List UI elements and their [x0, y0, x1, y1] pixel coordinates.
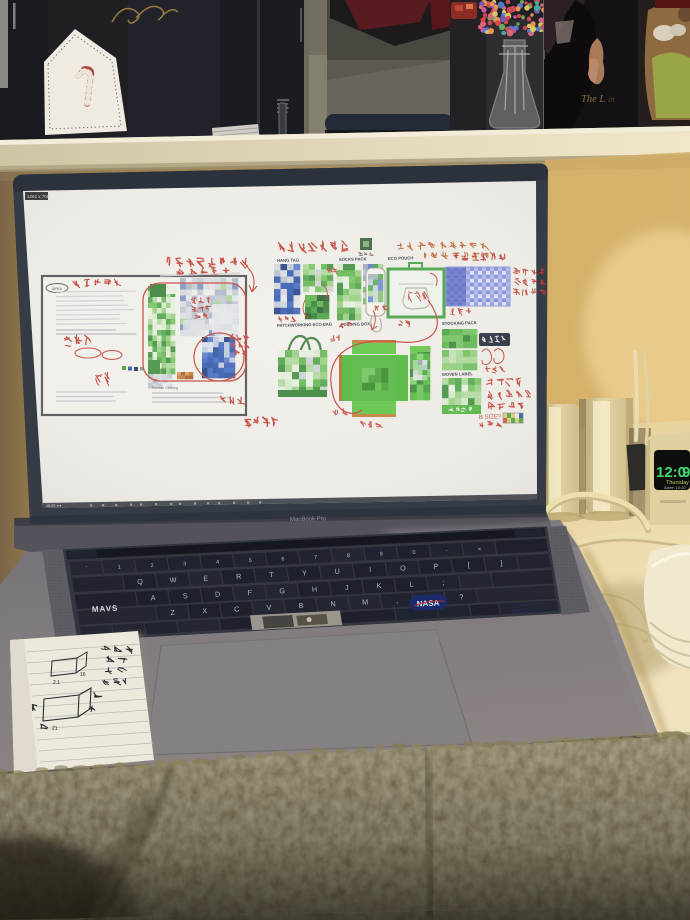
svg-text:R: R: [236, 572, 242, 581]
svg-text:V: V: [266, 603, 271, 612]
svg-text:[: [: [467, 560, 469, 569]
svg-text:I: I: [369, 565, 371, 574]
svg-text:5: 5: [249, 558, 252, 564]
svg-text:A: A: [150, 593, 155, 602]
svg-text:Alarm 10:20: Alarm 10:20: [664, 485, 686, 490]
svg-text:,: ,: [396, 596, 398, 605]
svg-text:7: 7: [314, 555, 317, 561]
svg-text:B: B: [298, 601, 303, 610]
svg-text:M: M: [362, 597, 368, 606]
svg-text:MAVS: MAVS: [92, 604, 119, 614]
svg-text:Q: Q: [137, 577, 143, 586]
svg-text:itt: itt: [608, 95, 615, 104]
svg-text:1: 1: [118, 565, 121, 571]
svg-text:16: 16: [80, 672, 86, 678]
svg-text:Y: Y: [302, 568, 307, 577]
svg-text:=: =: [478, 547, 481, 553]
svg-text:21: 21: [52, 726, 58, 732]
svg-text:X: X: [202, 606, 207, 615]
svg-text:9: 9: [380, 552, 383, 558]
svg-text:W: W: [169, 575, 176, 584]
svg-text:U: U: [334, 567, 340, 576]
svg-text:?: ?: [459, 592, 463, 601]
svg-text:L: L: [409, 579, 413, 588]
svg-text:3: 3: [183, 561, 186, 567]
svg-text:8: 8: [347, 553, 350, 559]
svg-text:P: P: [433, 562, 438, 571]
svg-text:S: S: [183, 591, 188, 600]
svg-text:2.1: 2.1: [53, 680, 60, 686]
svg-text:9: 9: [682, 464, 690, 481]
svg-text:G: G: [279, 586, 285, 595]
svg-text:;: ;: [442, 578, 444, 587]
svg-text:K: K: [376, 581, 381, 590]
svg-text:4: 4: [216, 560, 219, 566]
svg-text:H: H: [312, 584, 318, 593]
svg-text:O: O: [400, 563, 406, 572]
svg-text:D: D: [215, 590, 221, 599]
svg-text:The L: The L: [581, 94, 605, 105]
svg-text:N: N: [330, 599, 336, 608]
svg-text:MacBook Pro: MacBook Pro: [290, 516, 327, 523]
svg-text:2: 2: [150, 563, 153, 569]
svg-text:0: 0: [412, 550, 415, 556]
svg-text:E: E: [203, 573, 208, 582]
svg-text:6: 6: [281, 556, 284, 562]
svg-text:C: C: [234, 604, 240, 613]
svg-text:]: ]: [500, 558, 502, 567]
